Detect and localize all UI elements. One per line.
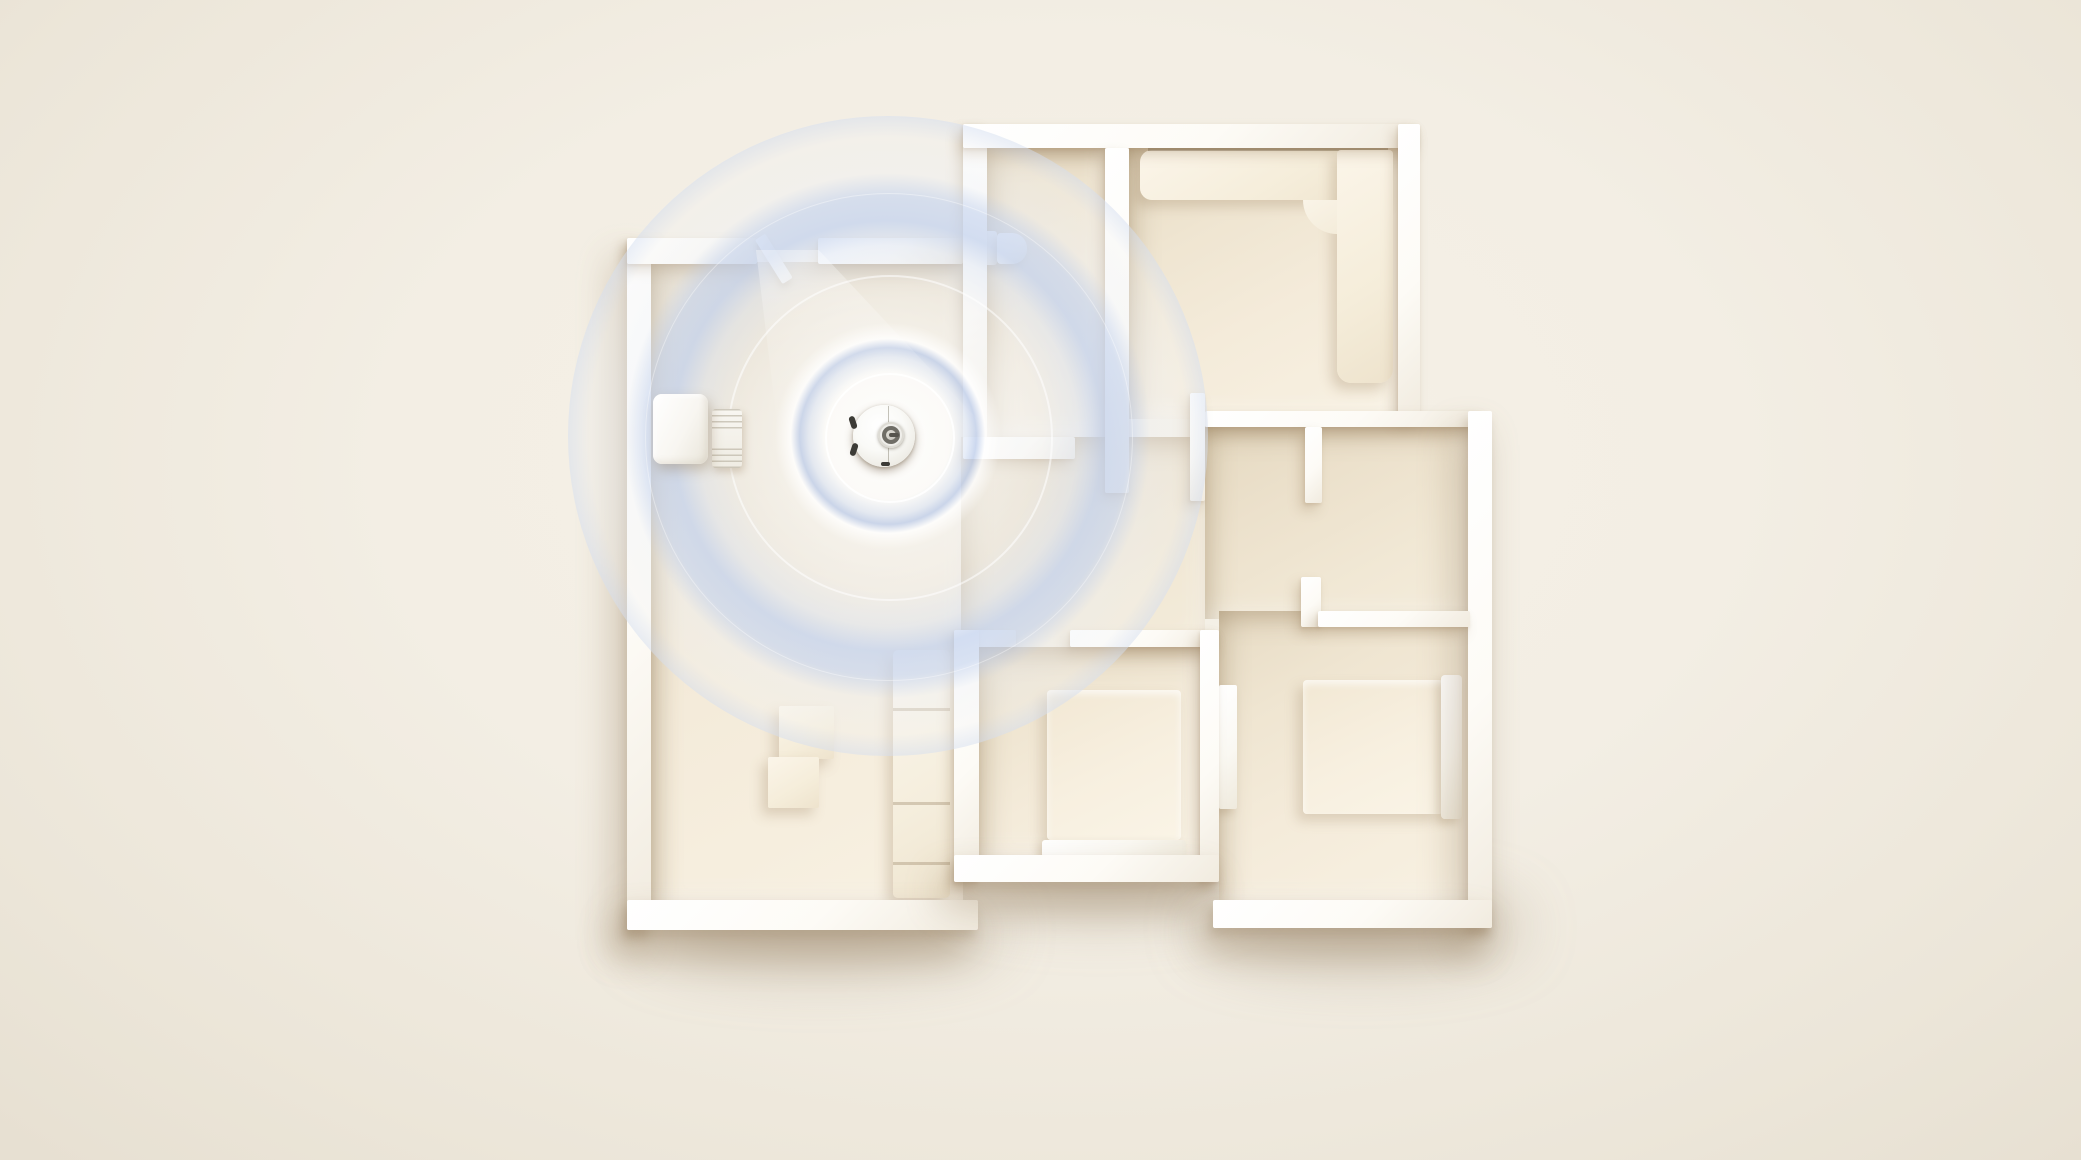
bedroom1-top-wall-right xyxy=(1070,630,1219,647)
bedroom-shared-wall xyxy=(1200,630,1219,882)
bathroom-left-wall xyxy=(963,124,987,459)
bathroom-floor xyxy=(987,148,1105,437)
toilet-bowl xyxy=(997,233,1027,264)
hallway-floor xyxy=(961,437,1205,649)
study-divider-wall xyxy=(1305,427,1322,503)
bedroom1-left-wall xyxy=(954,630,979,882)
study-floor xyxy=(1205,427,1468,619)
scene xyxy=(0,0,2081,1160)
lounge-sofa-side xyxy=(1337,150,1393,383)
living-room-sofa xyxy=(893,650,950,898)
robot-lidar-turret xyxy=(878,422,904,448)
robot-bumper-sensor xyxy=(881,462,890,466)
coffee-table-1 xyxy=(779,706,834,759)
living-room-left-wall xyxy=(627,238,651,930)
robot-lidar-slot xyxy=(889,433,899,436)
bedroom1-bottom-wall xyxy=(954,855,1219,882)
bedroom2-top-wall xyxy=(1318,611,1470,627)
bedroom2-bed-headboard xyxy=(1441,675,1462,819)
dock-pad xyxy=(712,409,742,468)
coffee-table-2 xyxy=(768,757,819,808)
bedroom1-bed xyxy=(1047,690,1181,840)
bathroom-bottom-wall xyxy=(963,437,1075,459)
living-room-bottom-wall xyxy=(627,900,978,930)
bedroom2-wardrobe xyxy=(1219,685,1237,809)
bedroom2-bed xyxy=(1303,680,1443,814)
living-room-top-wall-left xyxy=(627,238,757,264)
living-room-top-wall-right xyxy=(818,238,963,264)
study-top-wall xyxy=(1205,411,1483,427)
right-outer-wall xyxy=(1468,411,1492,928)
top-outer-wall xyxy=(963,124,1420,148)
bedroom2-bottom-wall xyxy=(1213,900,1492,928)
dock-station xyxy=(653,394,708,464)
hall-stub-wall xyxy=(1190,393,1205,501)
bathroom-lounge-divider-wall xyxy=(1105,148,1129,493)
lounge-right-wall xyxy=(1398,124,1420,419)
